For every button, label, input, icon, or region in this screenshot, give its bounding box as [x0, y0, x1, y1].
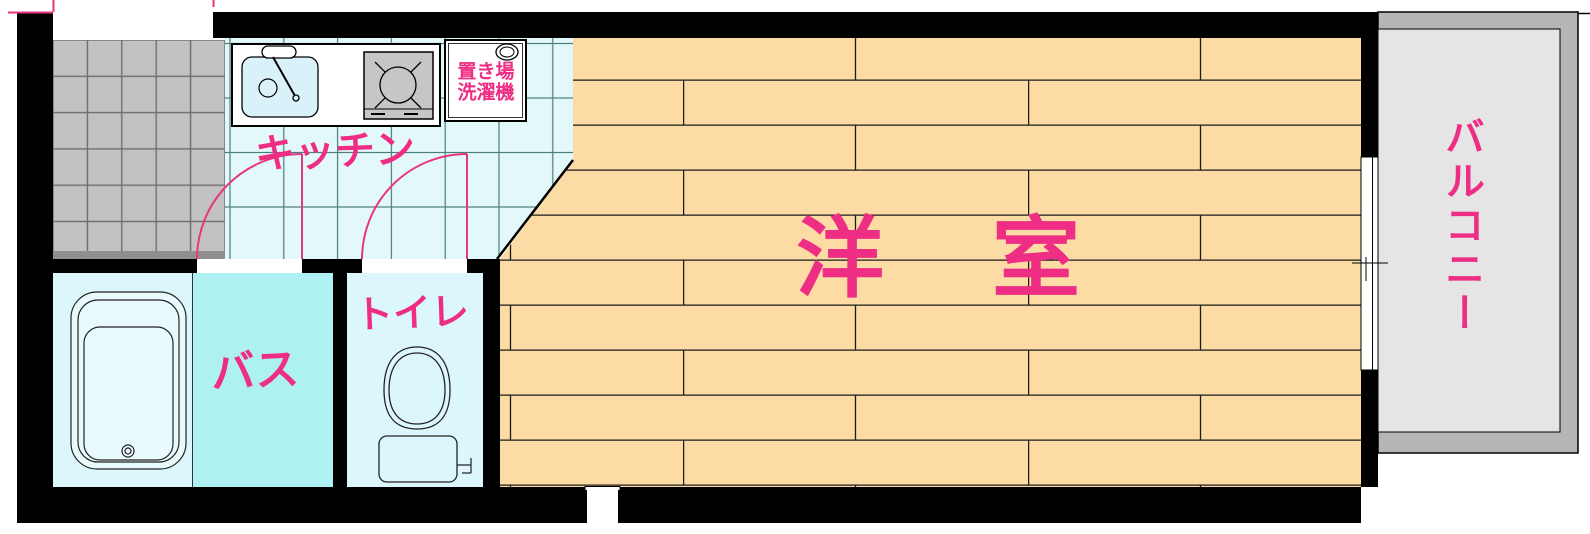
wall-mid-b: [302, 259, 362, 273]
sink-icon: [242, 46, 318, 117]
entrance-door-mark: [8, 0, 214, 13]
wall-right-lower: [1361, 370, 1378, 487]
pipe-shaft-notch: [585, 487, 620, 524]
balcony-label: バルコニー: [1441, 116, 1481, 336]
washer-place-label-line1: 置き場: [457, 63, 514, 82]
wall-mid-a: [53, 259, 197, 273]
kitchen-label: キッチン: [254, 129, 415, 175]
wall-bottom: [17, 487, 1361, 523]
washer-place-label-line2: 洗濯機: [457, 84, 514, 103]
washer-faucet-icon: [496, 44, 518, 60]
wall-toilet-right: [483, 259, 500, 487]
wall-left: [17, 12, 53, 523]
wall-bath-toilet: [333, 273, 347, 487]
kitchen-counter: [232, 44, 440, 126]
bathtub-icon: [71, 292, 186, 469]
western-room-label: 洋 室: [796, 215, 1090, 303]
entrance-tile-area: [53, 40, 225, 259]
wall-top: [213, 12, 1361, 38]
wall-right-upper: [1361, 12, 1378, 157]
toilet-label: トイレ: [354, 292, 469, 334]
stove-icon: [364, 52, 433, 119]
bath-label: バス: [210, 348, 300, 397]
balcony: [1378, 12, 1590, 453]
floor-plan: キッチン 洋 室 バス トイレ バルコニー 置き場 洗濯機: [0, 0, 1590, 534]
